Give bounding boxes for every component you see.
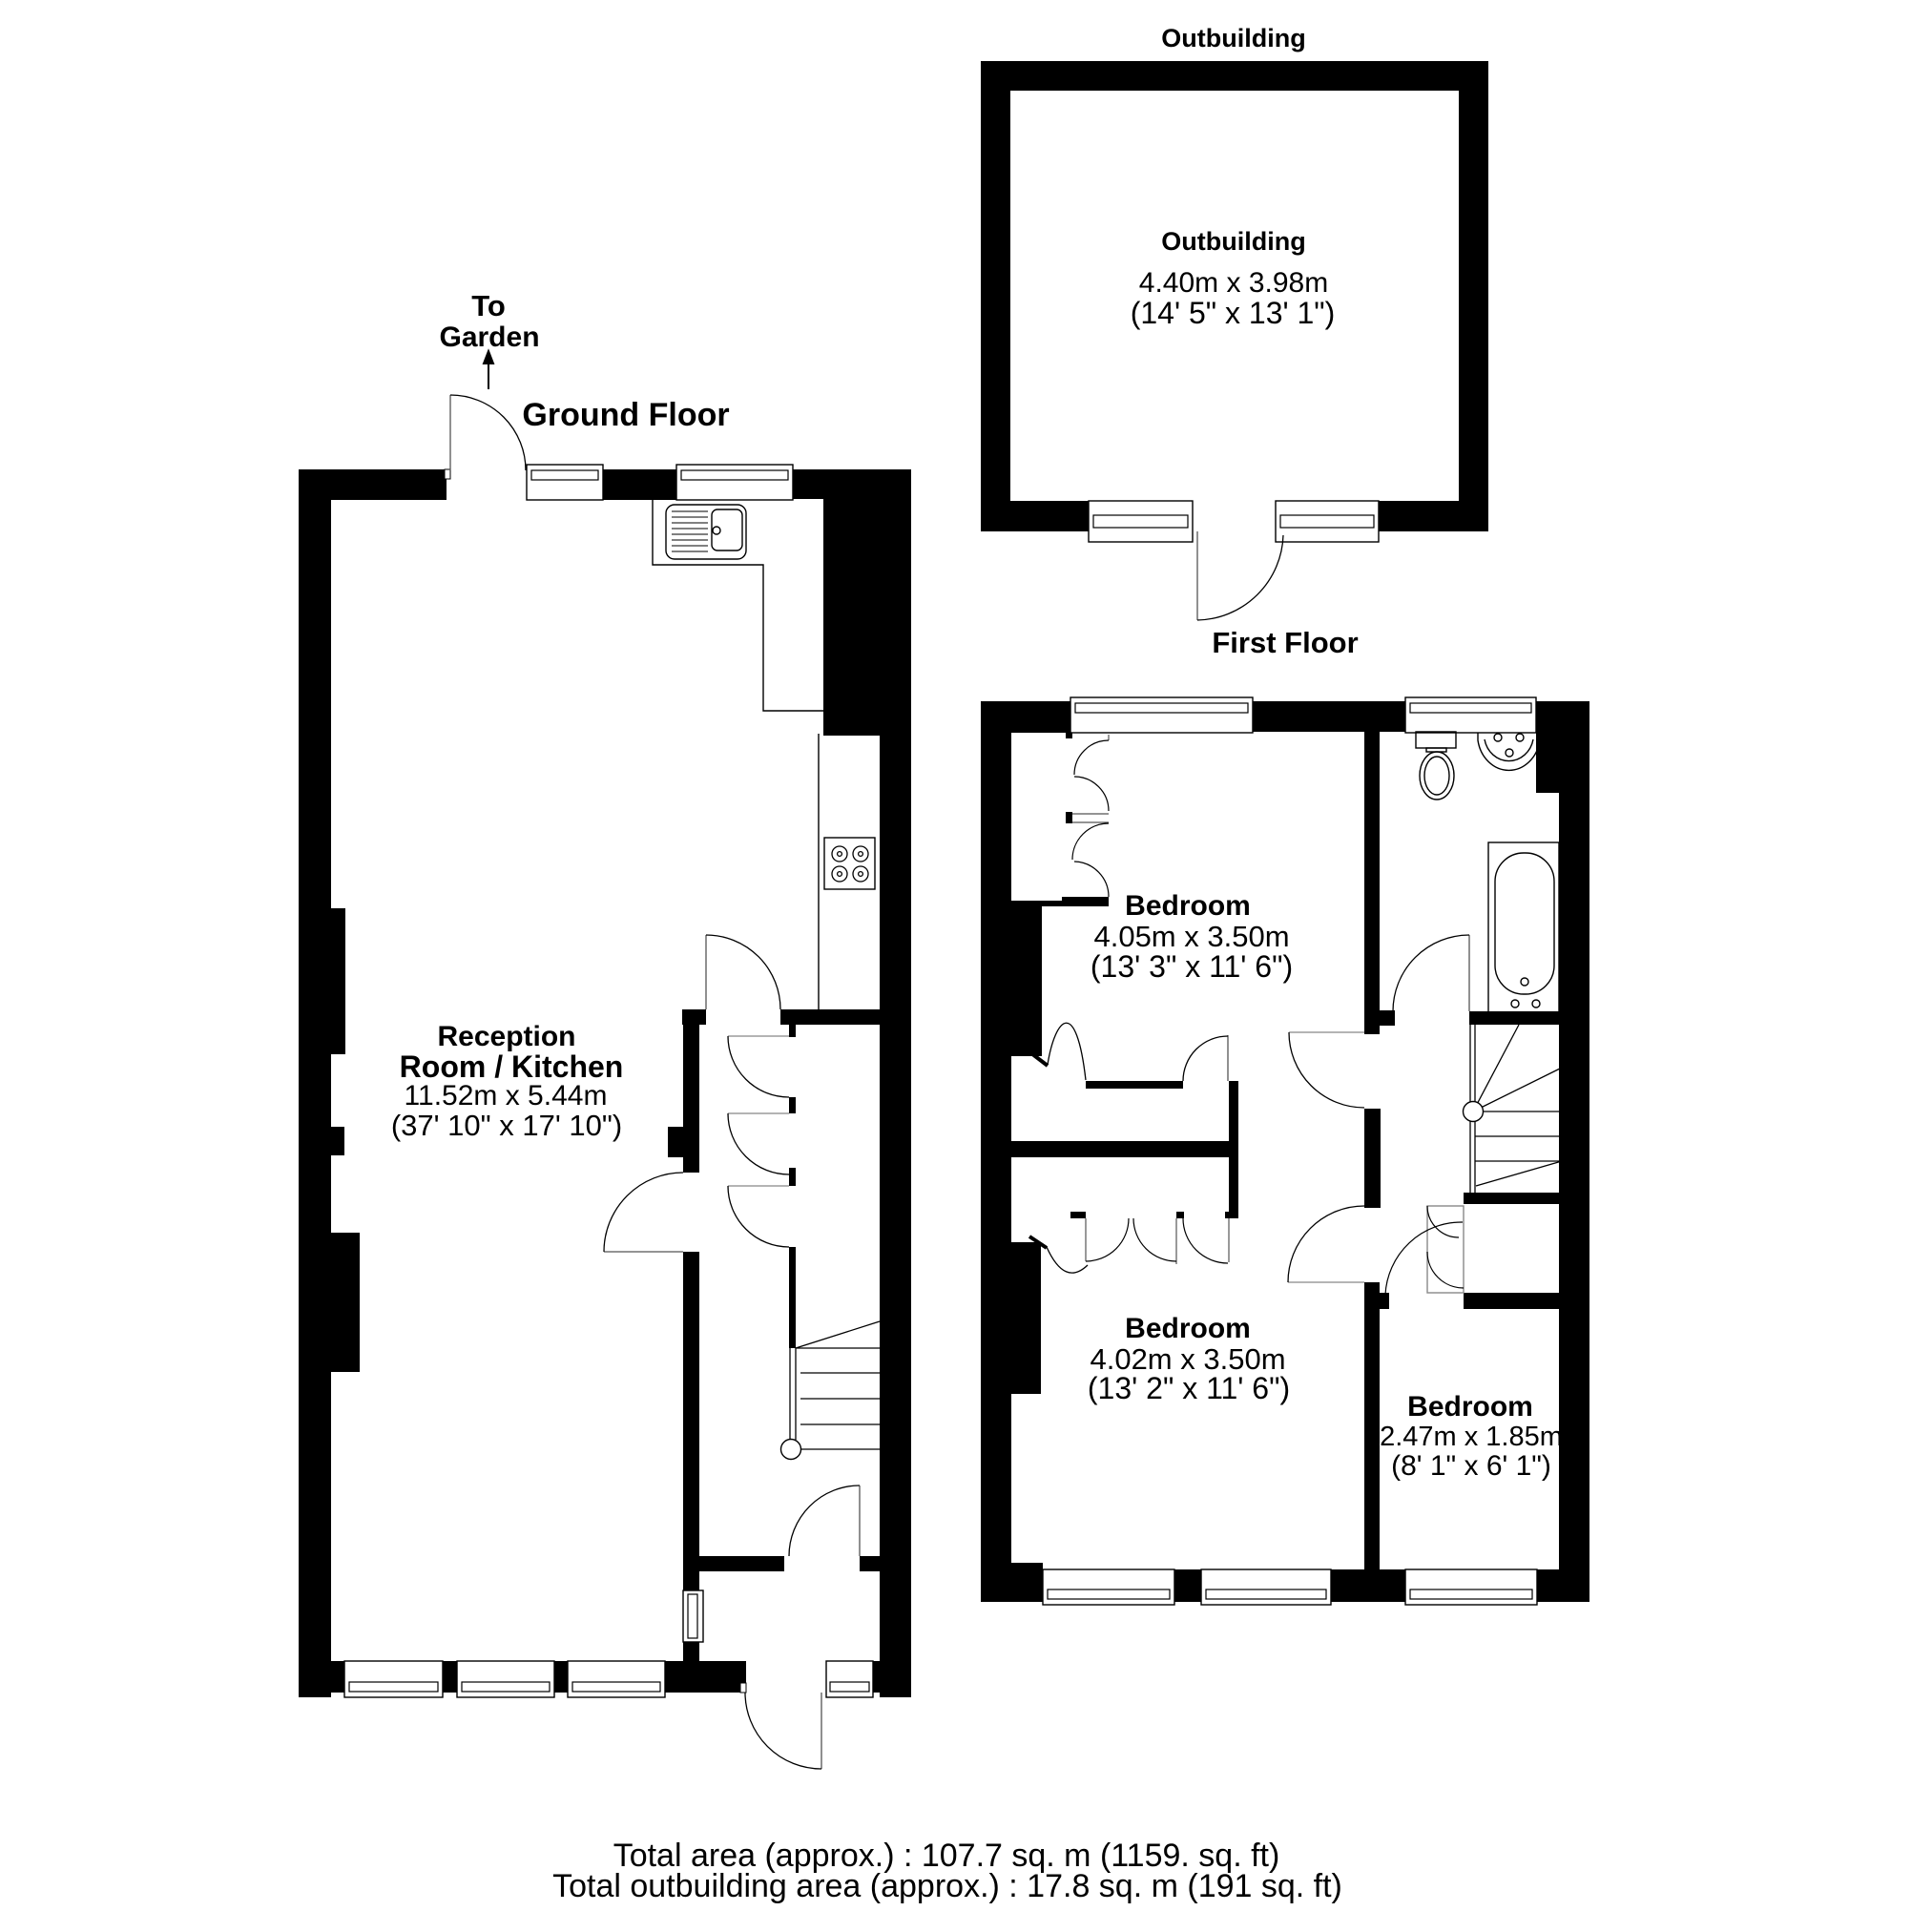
svg-text:Total outbuilding area (approx: Total outbuilding area (approx.) : 17.8 … — [552, 1868, 1342, 1904]
svg-text:Outbuilding: Outbuilding — [1161, 227, 1305, 256]
svg-text:11.52m x 5.44m: 11.52m x 5.44m — [405, 1080, 608, 1111]
svg-text:Bedroom: Bedroom — [1125, 1313, 1251, 1344]
svg-text:2.47m x 1.85m: 2.47m x 1.85m — [1380, 1422, 1563, 1452]
svg-text:4.05m x 3.50m: 4.05m x 3.50m — [1093, 920, 1289, 953]
svg-text:Bedroom: Bedroom — [1407, 1391, 1533, 1423]
svg-text:(14' 5" x 13' 1"): (14' 5" x 13' 1") — [1131, 296, 1336, 330]
svg-text:Bedroom: Bedroom — [1125, 890, 1251, 922]
svg-text:Outbuilding: Outbuilding — [1161, 24, 1305, 52]
svg-text:To: To — [471, 289, 506, 322]
svg-text:(13' 3" x 11' 6"): (13' 3" x 11' 6") — [1091, 949, 1293, 984]
svg-text:Room / Kitchen: Room / Kitchen — [400, 1049, 624, 1084]
svg-text:Ground Floor: Ground Floor — [522, 397, 729, 433]
svg-text:4.40m x 3.98m: 4.40m x 3.98m — [1139, 267, 1328, 299]
svg-text:Garden: Garden — [439, 322, 539, 353]
svg-text:First Floor: First Floor — [1212, 626, 1358, 659]
svg-text:(8' 1" x 6' 1"): (8' 1" x 6' 1") — [1391, 1450, 1551, 1482]
svg-text:(13' 2" x 11' 6"): (13' 2" x 11' 6") — [1088, 1371, 1290, 1405]
svg-text:Reception: Reception — [437, 1021, 575, 1052]
svg-text:(37' 10" x 17' 10"): (37' 10" x 17' 10") — [391, 1109, 622, 1142]
